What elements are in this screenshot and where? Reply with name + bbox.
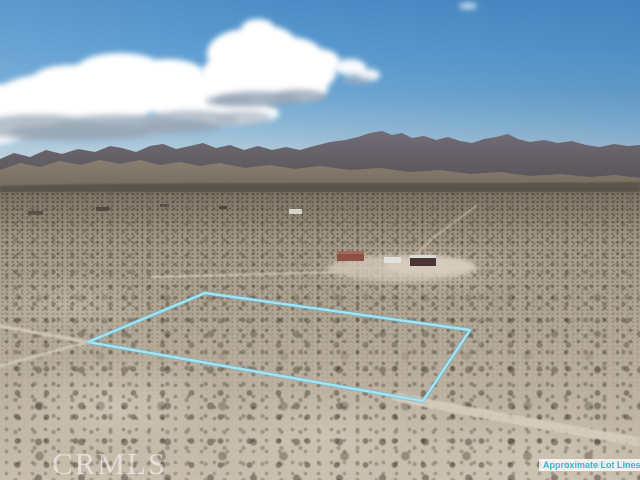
aerial-photo: CRMLS Approximate Lot Lines [0, 0, 640, 480]
road-left-lower [0, 342, 88, 366]
road-mid-horizontal [152, 272, 340, 277]
cloud-central-cumulus [196, 19, 340, 107]
distant-structure [219, 206, 227, 209]
distant-structure [28, 211, 43, 215]
lot-boundary-underlay [88, 293, 470, 401]
road-foreground [396, 397, 640, 442]
distant-structure-light [289, 209, 302, 214]
road-left-upper [0, 326, 88, 342]
dirt-roads [0, 206, 640, 442]
approximate-lot-lines-label: Approximate Lot Lines [539, 459, 640, 471]
white-trailer [384, 257, 401, 263]
cloud-small-puffs [334, 3, 477, 84]
red-roof-house-ridge [337, 251, 364, 254]
distant-structure [96, 207, 109, 211]
distant-structures [28, 204, 302, 215]
distant-structure [160, 204, 169, 207]
lot-boundary [88, 293, 470, 401]
scene-overlay [0, 0, 640, 480]
road-driveway [417, 206, 476, 254]
homestead [327, 251, 477, 281]
crmls-watermark: CRMLS [52, 446, 167, 480]
dark-metal-building-roof [410, 255, 436, 258]
lot-boundary-line [88, 293, 470, 401]
